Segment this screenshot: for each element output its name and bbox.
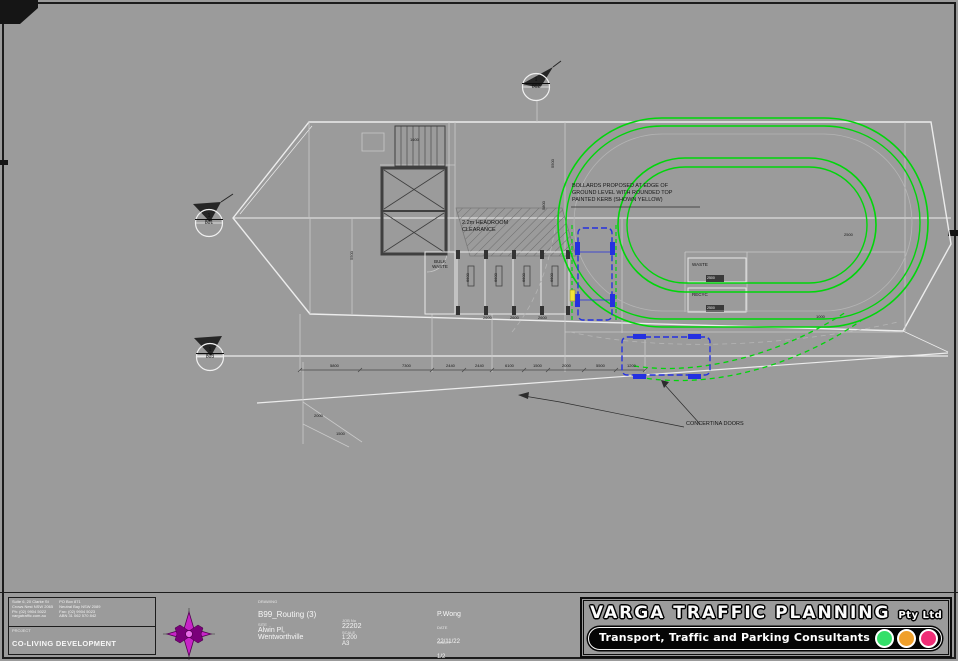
- sheet-size: A3: [342, 641, 361, 647]
- dock-note-line1: BOLLARDS PROPOSED AT EDGE OF: [572, 183, 672, 190]
- dim-label: 2000: [314, 414, 323, 419]
- dim-label: 1200: [627, 364, 636, 369]
- dim-label: 1000: [816, 315, 825, 320]
- project-field: PROJECT CO-LIVING DEVELOPMENT: [9, 627, 155, 652]
- dock-note-line3: PAINTED KERB (SHOWN YELLOW): [572, 197, 672, 204]
- dim-label: 7300: [402, 364, 411, 369]
- traffic-light-red: [919, 629, 938, 648]
- dim-label: 2600: [510, 316, 519, 321]
- drawing-title-field: DRAWING B99_Routing (3): [258, 599, 316, 622]
- dim-label: 1500: [336, 432, 345, 437]
- marker-number: 1: [209, 347, 212, 353]
- dim-label: 1600: [410, 138, 419, 143]
- section-marker-1-text: 1 801: [195, 213, 223, 226]
- logo-name-text: VARGA TRAFFIC PLANNING: [590, 603, 890, 623]
- dim-label: 6600: [550, 273, 555, 282]
- headroom-note-line2: CLEARANCE: [462, 227, 508, 234]
- site-line1: Alwin Pl,: [258, 627, 303, 634]
- concertina-doors-label: CONCERTINA DOORS: [686, 421, 744, 428]
- dock-note: BOLLARDS PROPOSED AT EDGE OF GROUND LEVE…: [572, 183, 672, 204]
- bulk-waste-label: BULK WASTE: [428, 259, 452, 270]
- waste-room-dim: 2500: [707, 276, 715, 280]
- sheet-corner-mark: [0, 0, 38, 24]
- site-plan-canvas: [0, 0, 958, 661]
- company-address-left: Suite 6, 20 Clarke St Crows Nest NSW 206…: [12, 600, 53, 624]
- company-address-right: PO Box 871 Neutral Bay NSW 2089 Fax: (02…: [59, 600, 100, 624]
- headroom-note-line1: 2.2m HEADROOM: [462, 220, 508, 227]
- headroom-note: 2.2m HEADROOM CLEARANCE: [462, 220, 508, 234]
- site-field: SITE Alwin Pl, Wentworthville: [258, 622, 303, 641]
- waste-room-label: WASTE: [692, 262, 708, 267]
- bulk-waste-line2: WASTE: [428, 264, 452, 269]
- dim-label: 2600: [538, 316, 547, 321]
- marker-number: 1: [208, 213, 211, 219]
- north-compass-icon: [163, 608, 215, 660]
- dim-label: 2000: [562, 364, 571, 369]
- sheet-number: 1/2: [437, 654, 445, 660]
- recycle-room-label: RECYC: [692, 292, 708, 297]
- dim-label: 2600: [483, 316, 492, 321]
- logo-company-name: VARGA TRAFFIC PLANNING Pty Ltd: [590, 603, 942, 623]
- marker-sheet-ref: 803: [196, 353, 224, 360]
- dim-label: 6600: [522, 273, 527, 282]
- marker-sheet-ref: 801: [195, 219, 223, 226]
- sheet-field: SHEET 1/2: [437, 640, 450, 661]
- section-marker-3-text: 1 803: [196, 347, 224, 360]
- dim-label: 6600: [494, 273, 499, 282]
- job-scale-field: JOB No 22202 SCALE 1:200 A3: [342, 618, 361, 647]
- drawing-title-label: DRAWING: [258, 599, 316, 604]
- company-line: ABN 31 062 570 842: [59, 614, 100, 619]
- dim-label: 2440: [446, 364, 455, 369]
- traffic-lights: [875, 629, 938, 648]
- dim-label: 5500: [350, 251, 355, 260]
- dim-label: 1500: [533, 364, 542, 369]
- dimension-line: [298, 368, 647, 372]
- dock-note-line2: GROUND LEVEL WITH ROUNDED TOP: [572, 190, 672, 197]
- logo-tagline: Transport, Traffic and Parking Consultan…: [599, 631, 870, 644]
- recycle-room-dim: 2500: [707, 306, 715, 310]
- drawn-by-value: P.Wong: [437, 611, 461, 618]
- dim-label: 2500: [844, 233, 853, 238]
- yellow-kerb-mark: [570, 290, 575, 301]
- title-block-divider: [0, 592, 958, 593]
- loading-bays: [456, 250, 570, 315]
- traffic-light-amber: [897, 629, 916, 648]
- sheet-label: SHEET: [437, 640, 450, 645]
- project-label: PROJECT: [12, 628, 152, 633]
- left-edge-tick: [0, 160, 8, 165]
- dim-label: 6600: [466, 273, 471, 282]
- dim-label: 2440: [475, 364, 484, 369]
- job-number: 22202: [342, 623, 361, 630]
- company-info-box: Suite 6, 20 Clarke St Crows Nest NSW 206…: [8, 597, 156, 655]
- lift-core: [382, 168, 446, 254]
- stair-core: [395, 126, 445, 166]
- interior-walls: [300, 100, 905, 447]
- dim-label: 5800: [330, 364, 339, 369]
- marker-sheet-ref: 802: [522, 83, 550, 90]
- logo-suffix-text: Pty Ltd: [898, 610, 942, 621]
- project-name: CO-LIVING DEVELOPMENT: [12, 639, 116, 648]
- company-line: vargatraffic.com.au: [12, 614, 53, 619]
- company-contacts: Suite 6, 20 Clarke St Crows Nest NSW 206…: [9, 598, 155, 627]
- drawn-by-field: P.Wong: [437, 603, 461, 621]
- dim-label: 6100: [505, 364, 514, 369]
- marker-number: 1: [535, 77, 538, 83]
- site-line2: Wentworthville: [258, 634, 303, 641]
- date-label: DATE: [437, 625, 460, 630]
- varga-logo-box: VARGA TRAFFIC PLANNING Pty Ltd Transport…: [580, 597, 952, 658]
- drawing-sheet: BOLLARDS PROPOSED AT EDGE OF GROUND LEVE…: [0, 0, 958, 661]
- section-marker-2-text: 1 802: [522, 77, 550, 90]
- drawing-title-value: B99_Routing (3): [258, 610, 316, 619]
- dim-label: 5800: [542, 201, 547, 210]
- logo-tagline-band: Transport, Traffic and Parking Consultan…: [588, 627, 942, 650]
- sheet-border: [3, 3, 955, 658]
- dim-label: 5500: [596, 364, 605, 369]
- dim-label: 5500: [551, 159, 556, 168]
- traffic-light-green: [875, 629, 894, 648]
